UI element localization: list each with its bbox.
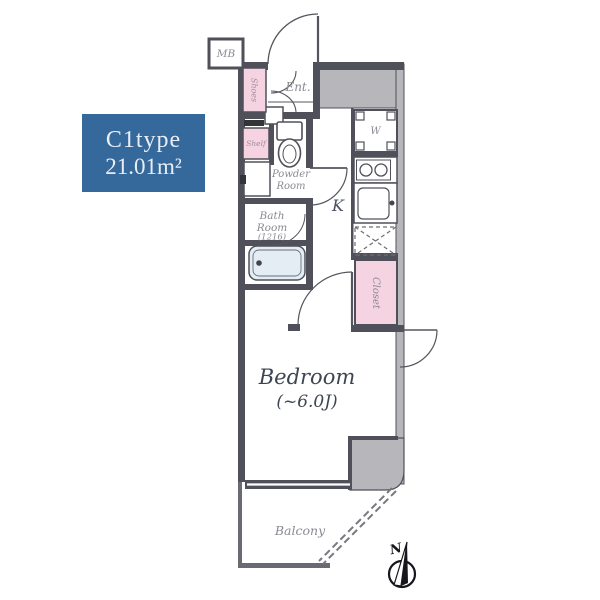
balcony-railing-inner xyxy=(319,488,392,561)
shelf-tick xyxy=(244,120,264,126)
closet-bottom-wall xyxy=(351,325,404,332)
fridge-closet-wall xyxy=(351,253,398,260)
burner-right xyxy=(375,164,387,176)
mb-label: MB xyxy=(216,48,236,60)
shoes-label: Shoes xyxy=(250,78,259,102)
compass-north-label: N xyxy=(388,541,405,559)
bath-room-label-1: Bath xyxy=(259,210,285,222)
exterior-door-arc xyxy=(400,330,437,367)
powder-room-label-2: Room xyxy=(275,181,305,192)
toilet-tank xyxy=(277,122,302,140)
balcony-bottom-wall xyxy=(238,563,330,568)
balcony-railing xyxy=(323,491,396,564)
washer-foot-tl xyxy=(356,112,364,120)
compass: N xyxy=(388,541,415,587)
bedroom-label: Bedroom xyxy=(258,365,356,389)
washer-label: W xyxy=(370,126,381,137)
kitchen-sink xyxy=(358,188,389,219)
bedroom-door-stub xyxy=(288,324,300,331)
powder-room-label-1: Powder xyxy=(271,169,311,180)
floorplan-svg: N MB Ent. Shoes Shelf Powder Room Bath R… xyxy=(0,0,600,600)
refrigerator-space xyxy=(355,227,396,255)
top-wall-right xyxy=(313,62,404,70)
washbasin xyxy=(244,162,270,196)
left-outer-wall xyxy=(238,62,245,482)
entrance-right-wall xyxy=(313,62,320,119)
floorplan: N MB Ent. Shoes Shelf Powder Room Bath R… xyxy=(0,0,600,600)
balcony-label: Balcony xyxy=(274,523,326,538)
entrance-door-arc xyxy=(268,14,318,64)
burner-left xyxy=(360,164,372,176)
closet-label: Closet xyxy=(370,277,381,310)
bath-bottom-wall xyxy=(238,284,313,290)
kitchen-label: K xyxy=(331,196,345,215)
unit-area-label: 21.01m² xyxy=(105,154,182,180)
faucet xyxy=(390,201,395,206)
pillar-bottom-right xyxy=(350,438,404,490)
balcony-left-wall xyxy=(238,482,242,568)
bathtub-drain xyxy=(256,260,262,266)
unit-type-box: C1type 21.01m² xyxy=(82,114,205,192)
pillar-top-right xyxy=(318,66,396,108)
bath-size-label: (1216) xyxy=(258,232,286,243)
washbasin-knob xyxy=(240,175,246,184)
entrance-bottom-wall-b xyxy=(282,112,320,119)
unit-type-label: C1type xyxy=(106,127,181,154)
powder-room-right-wall xyxy=(306,119,313,168)
washer-foot-tr xyxy=(387,112,395,120)
washer-foot-bl xyxy=(356,142,364,150)
bedroom-size-label: (~6.0J) xyxy=(276,392,337,412)
shelf-label: Shelf xyxy=(246,139,267,148)
washer-foot-br xyxy=(387,142,395,150)
bath-top-wall xyxy=(238,198,313,204)
pillar-top-edge xyxy=(348,436,398,440)
bath-right-wall xyxy=(306,198,313,290)
entrance-bottom-wall-a xyxy=(238,112,266,119)
entrance-label: Ent. xyxy=(284,80,310,94)
